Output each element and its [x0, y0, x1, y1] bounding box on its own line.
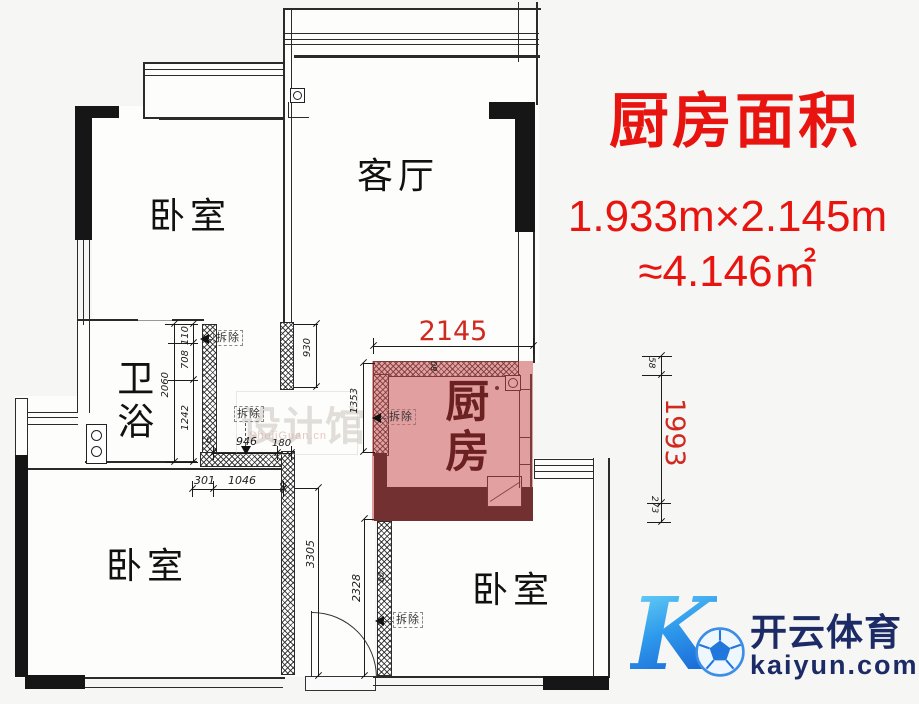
wall-line: [373, 685, 543, 686]
wall-line: [89, 325, 90, 413]
window-line: [534, 478, 594, 479]
dim-ext: [642, 375, 672, 376]
wall-line: [534, 459, 535, 479]
kitchen-size-text: 1.933m×2.145m: [555, 194, 900, 240]
wall-line: [85, 677, 285, 679]
room-fill: [533, 458, 595, 678]
wall-line: [27, 398, 28, 456]
dim-label-3305: 3305: [305, 540, 316, 568]
wall-line: [143, 62, 284, 64]
wall-line: [288, 117, 309, 118]
wall-line: [143, 117, 160, 119]
window-line: [285, 33, 539, 34]
bathroom-fixture: [86, 424, 107, 464]
room-label-bedroom-top-left: 卧室: [130, 196, 250, 236]
dim-ext: [363, 363, 375, 364]
demolish-leader: [245, 423, 246, 446]
demolish-arrow: [241, 446, 251, 455]
wall-line: [536, 2, 538, 105]
dim-label-80-side: 80: [378, 572, 386, 582]
kitchen-area-title: 厨房面积: [575, 90, 895, 153]
dim-label-kitchen-width: 2145: [393, 318, 513, 345]
dim-label-110: 110: [181, 326, 191, 345]
fixture-circle: [91, 430, 102, 441]
wall-line: [291, 8, 292, 324]
window-line: [89, 240, 90, 325]
window-line: [285, 39, 539, 40]
fixture-circle: [293, 91, 302, 100]
wall-line: [159, 117, 284, 120]
wall-demolish-hatch: [280, 322, 294, 390]
dim-line: [193, 324, 194, 463]
dim-line: [363, 363, 364, 453]
wall-line: [283, 8, 541, 10]
dim-label-2328: 2328: [351, 574, 362, 602]
demolish-leader: [383, 621, 393, 622]
room-label-bedroom-bottom-left: 卧室: [87, 546, 207, 586]
window-line: [28, 417, 78, 418]
dim-ext: [364, 519, 374, 520]
dim-label-708: 708: [181, 350, 191, 369]
dim-line: [364, 519, 365, 677]
door-line: [138, 320, 172, 321]
wall-black: [543, 676, 609, 690]
wall-black: [25, 675, 85, 689]
dim-label-2060: 2060: [161, 372, 171, 397]
window-line: [534, 459, 594, 460]
dim-label-1242: 1242: [181, 405, 191, 430]
dim-label-0: 0: [206, 437, 212, 446]
wall-line: [518, 232, 519, 363]
dim-label-1046: 1046: [228, 475, 256, 486]
wall-line: [294, 55, 540, 58]
dim-line: [318, 488, 319, 677]
dim-label-1353: 1353: [350, 388, 360, 413]
wall-line: [28, 468, 282, 470]
dim-label-301: 301: [194, 475, 215, 486]
wall-black: [515, 102, 535, 232]
dim-ext: [363, 452, 375, 453]
dim-line: [174, 324, 175, 463]
room-label-kitchen: 厨房: [438, 372, 486, 484]
window-line: [285, 44, 539, 45]
dim-label-kitchen-height: 1993: [661, 398, 688, 467]
wall-black: [75, 106, 92, 240]
kitchen-area-text: ≈4.146㎡: [555, 249, 900, 295]
room-label-living: 客厅: [338, 156, 458, 196]
window-line: [534, 465, 594, 466]
wall-line: [15, 398, 16, 456]
room-label-bedroom-bottom-right: 卧室: [453, 570, 573, 610]
wall-demolish-hatch: [377, 521, 392, 676]
wall-line: [608, 458, 610, 677]
wall-line: [85, 687, 283, 688]
demolish-label-hall-wall: 拆除: [234, 406, 264, 422]
wall-line: [283, 8, 285, 324]
window-line: [28, 424, 78, 425]
window-line: [83, 240, 84, 325]
window-line: [77, 240, 78, 325]
wall-line: [143, 62, 145, 119]
logo-brand-text: 开云体育: [750, 602, 902, 656]
dim-label-930: 930: [303, 338, 313, 357]
room-label-bathroom: 卫浴: [111, 352, 152, 452]
dim-line: [192, 489, 284, 490]
dim-label-58: 58: [646, 357, 655, 368]
window-line: [145, 69, 283, 70]
dim-label-180: 180: [272, 439, 291, 449]
window-line: [28, 412, 78, 413]
dim-line: [316, 324, 317, 388]
dim-line: [213, 453, 292, 454]
room-fill: [143, 62, 285, 120]
demolish-label-kitchen-wall: 拆除: [386, 409, 416, 425]
dim-label-80-top: 80: [431, 361, 439, 371]
window-line: [145, 75, 283, 76]
wall-line: [77, 325, 78, 413]
demolish-label-bathroom-wall: 拆除: [213, 330, 243, 346]
logo-domain-text: kaiyun.com: [750, 650, 919, 681]
dim-label-50: 50: [280, 482, 288, 492]
demolish-label-bedroom-wall: 拆除: [393, 612, 423, 628]
wall-line: [593, 458, 594, 677]
fixture-circle: [91, 446, 102, 457]
window-line: [534, 471, 594, 472]
wall-line: [288, 102, 289, 118]
floorplan-page: 设计馆 ShejiGuan.cn 卧室 客厅 卫浴 卧室 卧室 厨房 2145 …: [0, 0, 919, 704]
dim-label-273: 273: [649, 496, 658, 513]
wall-black: [15, 455, 28, 677]
column-fixture: [290, 88, 305, 103]
soccer-ball-icon: [694, 626, 746, 678]
wall-line: [518, 2, 519, 62]
